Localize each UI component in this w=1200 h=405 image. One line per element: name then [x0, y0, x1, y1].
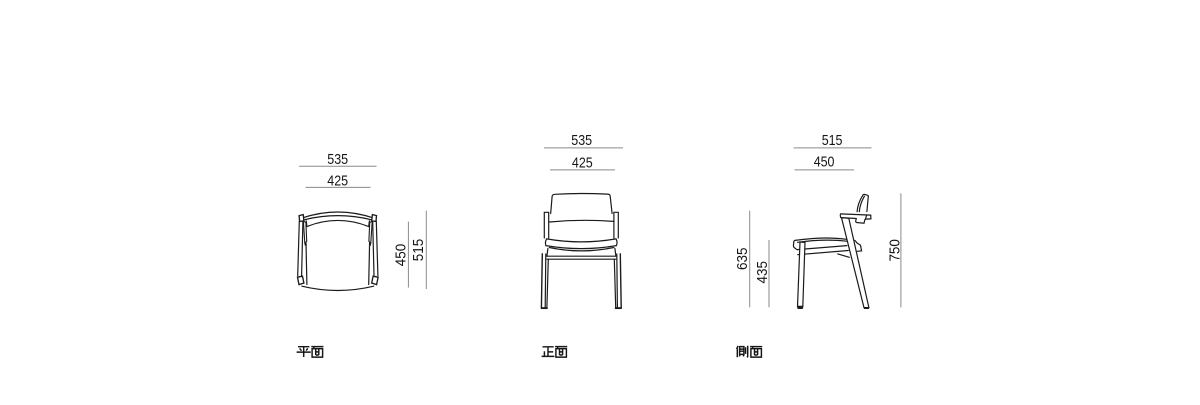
svg-text:515: 515	[822, 133, 843, 149]
svg-text:435: 435	[755, 261, 771, 284]
svg-text:635: 635	[735, 247, 751, 270]
svg-text:515: 515	[411, 239, 427, 262]
svg-text:450: 450	[393, 244, 409, 267]
svg-text:535: 535	[327, 152, 348, 168]
svg-text:750: 750	[888, 239, 904, 261]
svg-text:425: 425	[327, 174, 348, 190]
svg-text:450: 450	[814, 155, 835, 171]
svg-text:535: 535	[571, 133, 592, 149]
svg-text:425: 425	[572, 155, 593, 171]
